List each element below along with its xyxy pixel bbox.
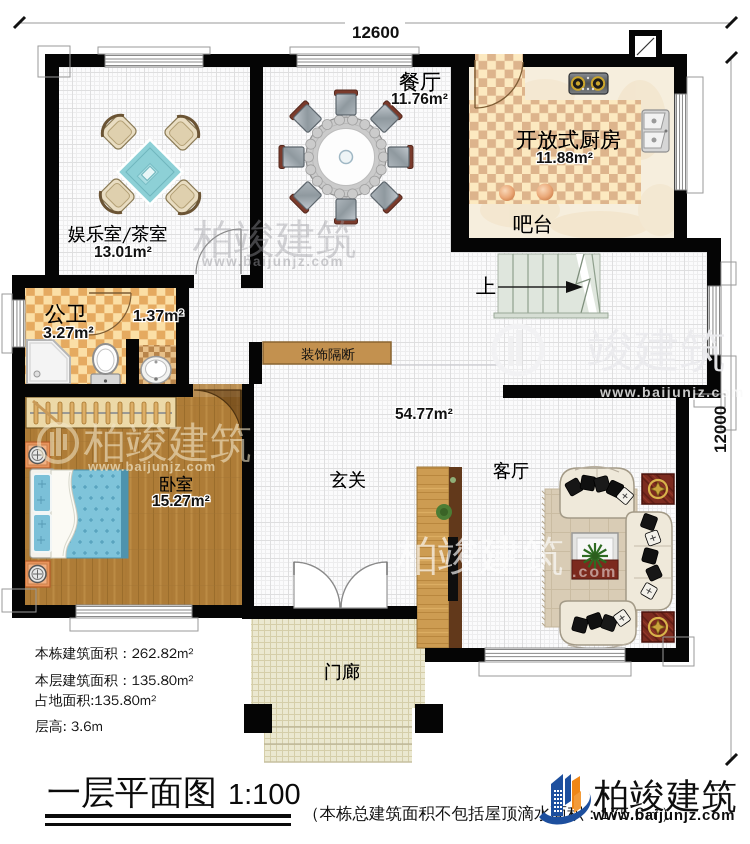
svg-text:11.88m²: 11.88m² bbox=[536, 150, 593, 167]
svg-text:www.baijunjz.com: www.baijunjz.com bbox=[201, 254, 344, 269]
svg-text:13.01m²: 13.01m² bbox=[94, 244, 152, 261]
svg-text:54.77m²: 54.77m² bbox=[395, 406, 453, 423]
svg-text:12600: 12600 bbox=[352, 23, 399, 42]
svg-text:1:100: 1:100 bbox=[228, 779, 301, 811]
svg-text:www.baijunjz.com: www.baijunjz.com bbox=[87, 459, 216, 474]
svg-text:www.baijunjz.com: www.baijunjz.com bbox=[592, 807, 735, 824]
svg-text:1.37m²: 1.37m² bbox=[133, 308, 184, 325]
svg-text:3.27m²: 3.27m² bbox=[43, 325, 94, 342]
svg-text:.com: .com bbox=[572, 564, 617, 581]
svg-text:15.27m²: 15.27m² bbox=[152, 493, 210, 510]
svg-text:11.76m²: 11.76m² bbox=[391, 91, 448, 108]
svg-text:12000: 12000 bbox=[711, 406, 730, 453]
svg-text:www.baijunjz.com: www.baijunjz.com bbox=[599, 384, 745, 400]
